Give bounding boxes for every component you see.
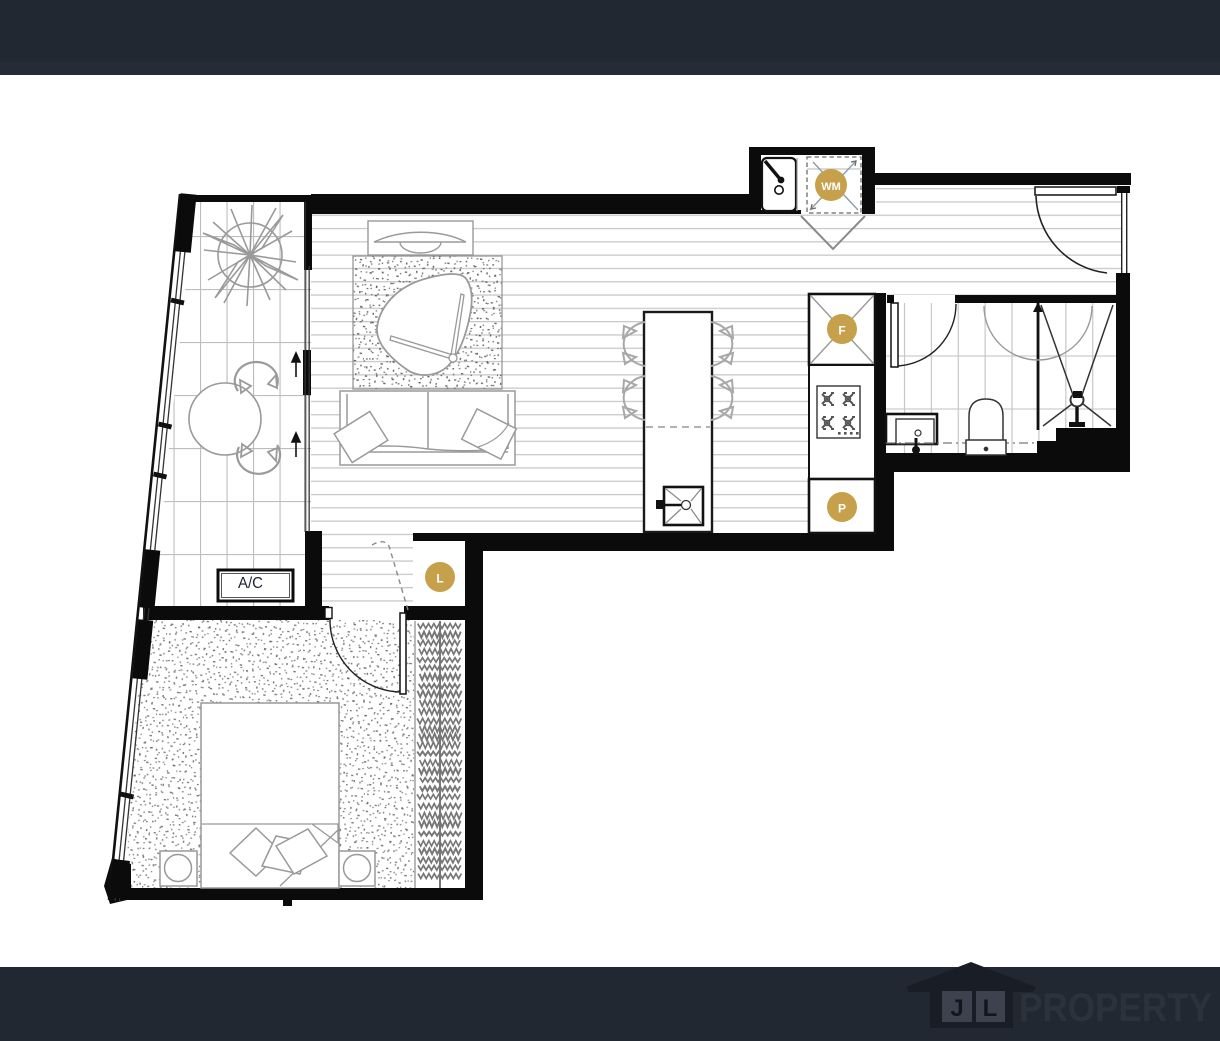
svg-text:J: J — [950, 995, 963, 1022]
svg-text:WM: WM — [821, 181, 841, 193]
svg-text:F: F — [838, 324, 845, 338]
svg-text:P: P — [838, 502, 846, 516]
svg-text:PROPERTY: PROPERTY — [1019, 986, 1212, 1030]
svg-text:L: L — [983, 995, 998, 1022]
svg-text:L: L — [436, 572, 443, 586]
svg-text:A/C: A/C — [238, 575, 263, 592]
